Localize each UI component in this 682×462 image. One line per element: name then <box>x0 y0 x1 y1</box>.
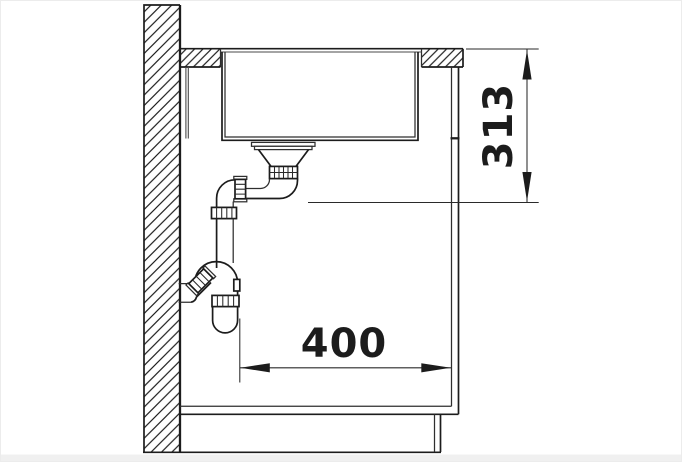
coupling-nut-b <box>212 207 237 218</box>
pipe-clip <box>234 279 240 291</box>
countertop-hatch-right <box>422 49 464 67</box>
page-background <box>0 0 682 462</box>
dimension-313-label: 313 <box>476 83 522 170</box>
installation-drawing-page: 313 400 <box>0 0 682 462</box>
countertop-hatch-left <box>180 49 221 67</box>
wall <box>144 5 180 452</box>
installation-drawing: 313 400 <box>0 0 682 462</box>
coupling-nut-c <box>212 295 239 306</box>
page-bottom-strip <box>0 455 682 462</box>
wall-hatch <box>144 5 180 452</box>
strainer-flange-lower <box>255 146 313 149</box>
dimension-400-label: 400 <box>301 321 388 367</box>
